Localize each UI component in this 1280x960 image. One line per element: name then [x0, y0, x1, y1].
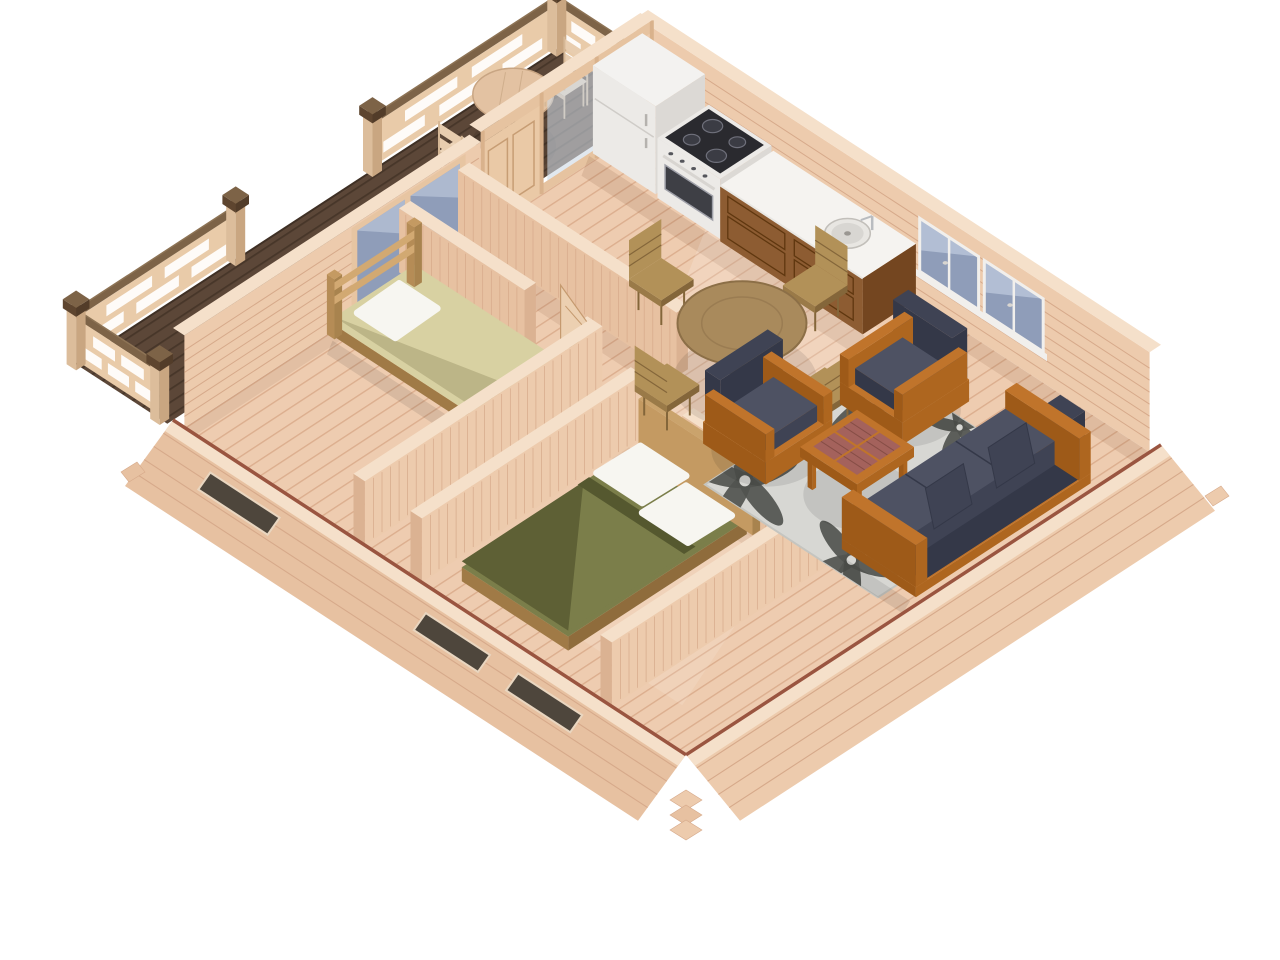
- floorplan-canvas: [0, 0, 1280, 960]
- cabin-3d-floorplan: [0, 0, 1280, 960]
